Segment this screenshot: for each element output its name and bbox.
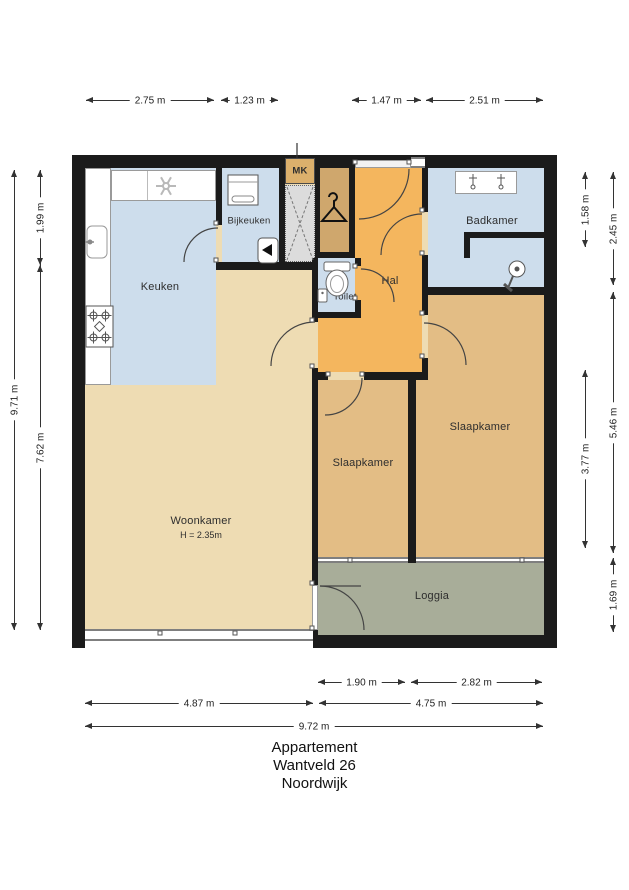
wall-segment	[318, 312, 361, 318]
dim-label: 1.99 m	[36, 197, 47, 238]
dim-label: 1.69 m	[609, 575, 620, 616]
dim-left-7-62: 7.62 m	[40, 265, 41, 630]
wall-segment	[216, 262, 318, 270]
wall-segment	[216, 168, 222, 225]
label-badkamer: Badkamer	[466, 215, 518, 227]
shaft	[285, 185, 315, 262]
dim-right-3-77: 3.77 m	[585, 370, 586, 548]
dim-label: 1.58 m	[581, 189, 592, 230]
wall-segment	[422, 295, 428, 315]
dim-right-5-46: 5.46 m	[613, 292, 614, 553]
wall-segment	[422, 287, 544, 295]
wall-segment	[364, 372, 428, 380]
label-toilet: Toilet	[333, 292, 356, 303]
dim-label: 5.46 m	[609, 402, 620, 443]
title-line-1: Appartement	[0, 739, 629, 757]
dim-label: 4.75 m	[411, 699, 452, 710]
dim-label: 2.82 m	[456, 678, 497, 689]
dim-label: 1.90 m	[341, 678, 382, 689]
dim-bottom-1-90: 1.90 m	[318, 682, 405, 683]
kitchen-counter-left	[85, 168, 111, 385]
wall-segment	[355, 258, 361, 266]
room-slaapkamer-right	[428, 295, 544, 380]
wall-segment	[422, 358, 428, 372]
bathroom-vanity	[455, 171, 517, 194]
livingroom-window	[85, 629, 313, 641]
room-hal	[355, 168, 422, 372]
room-slaapkamer-right-lower	[416, 380, 544, 557]
entry-sidelight-window	[411, 157, 425, 168]
dim-left-9-71: 9.71 m	[14, 170, 15, 630]
label-bijkeuken: Bijkeuken	[228, 216, 271, 227]
kitchen-counter-top	[111, 170, 216, 201]
label-mk: MK	[292, 166, 307, 177]
counter-seam	[147, 171, 148, 200]
dim-label: 2.45 m	[609, 208, 620, 249]
dim-label: 2.51 m	[464, 96, 505, 107]
dim-top-2-51: 2.51 m	[426, 100, 543, 101]
dim-right-1-69: 1.69 m	[613, 558, 614, 632]
label-woonkamer-height: H = 2.35m	[180, 530, 222, 540]
wall-segment	[318, 372, 328, 380]
dim-label: 9.71 m	[10, 380, 21, 421]
plan-title: Appartement Wantveld 26 Noordwijk	[0, 739, 629, 793]
dim-label: 1.23 m	[229, 96, 270, 107]
label-slaapkamer-right: Slaapkamer	[450, 421, 511, 433]
dim-label: 7.62 m	[36, 427, 47, 468]
label-hal: Hal	[381, 275, 398, 287]
title-line-3: Noordwijk	[0, 775, 629, 793]
room-toilet	[318, 258, 355, 312]
exterior-gap	[85, 641, 313, 648]
floorplan-canvas: 2.75 m 1.23 m 1.47 m 2.51 m 9.71 m 1.99 …	[0, 0, 629, 890]
wall-segment	[312, 258, 318, 322]
dim-top-1-47: 1.47 m	[352, 100, 421, 101]
label-loggia: Loggia	[415, 590, 449, 602]
label-slaapkamer-left: Slaapkamer	[333, 457, 394, 469]
dim-top-2-75: 2.75 m	[86, 100, 214, 101]
hal-closet	[320, 168, 349, 252]
wall-segment	[408, 380, 416, 557]
shower-partition	[464, 232, 470, 258]
dim-right-1-58: 1.58 m	[585, 172, 586, 247]
dim-bottom-2-82: 2.82 m	[411, 682, 542, 683]
label-keuken: Keuken	[141, 281, 180, 293]
dim-left-1-99: 1.99 m	[40, 170, 41, 265]
label-woonkamer: Woonkamer	[171, 515, 232, 527]
shower-partition	[464, 232, 544, 238]
wall-segment	[422, 168, 428, 212]
room-hal-lower	[318, 318, 355, 372]
dim-bottom-4-87: 4.87 m	[85, 703, 313, 704]
dim-bottom-9-72: 9.72 m	[85, 726, 543, 727]
dim-bottom-4-75: 4.75 m	[319, 703, 543, 704]
dim-top-1-23: 1.23 m	[221, 100, 278, 101]
title-line-2: Wantveld 26	[0, 757, 629, 775]
dim-right-2-45: 2.45 m	[613, 172, 614, 285]
dim-label: 3.77 m	[581, 439, 592, 480]
front-door-threshold	[355, 160, 411, 168]
dim-label: 1.47 m	[366, 96, 407, 107]
dim-label: 2.75 m	[130, 96, 171, 107]
dim-label: 4.87 m	[179, 699, 220, 710]
dim-label: 9.72 m	[294, 722, 335, 733]
